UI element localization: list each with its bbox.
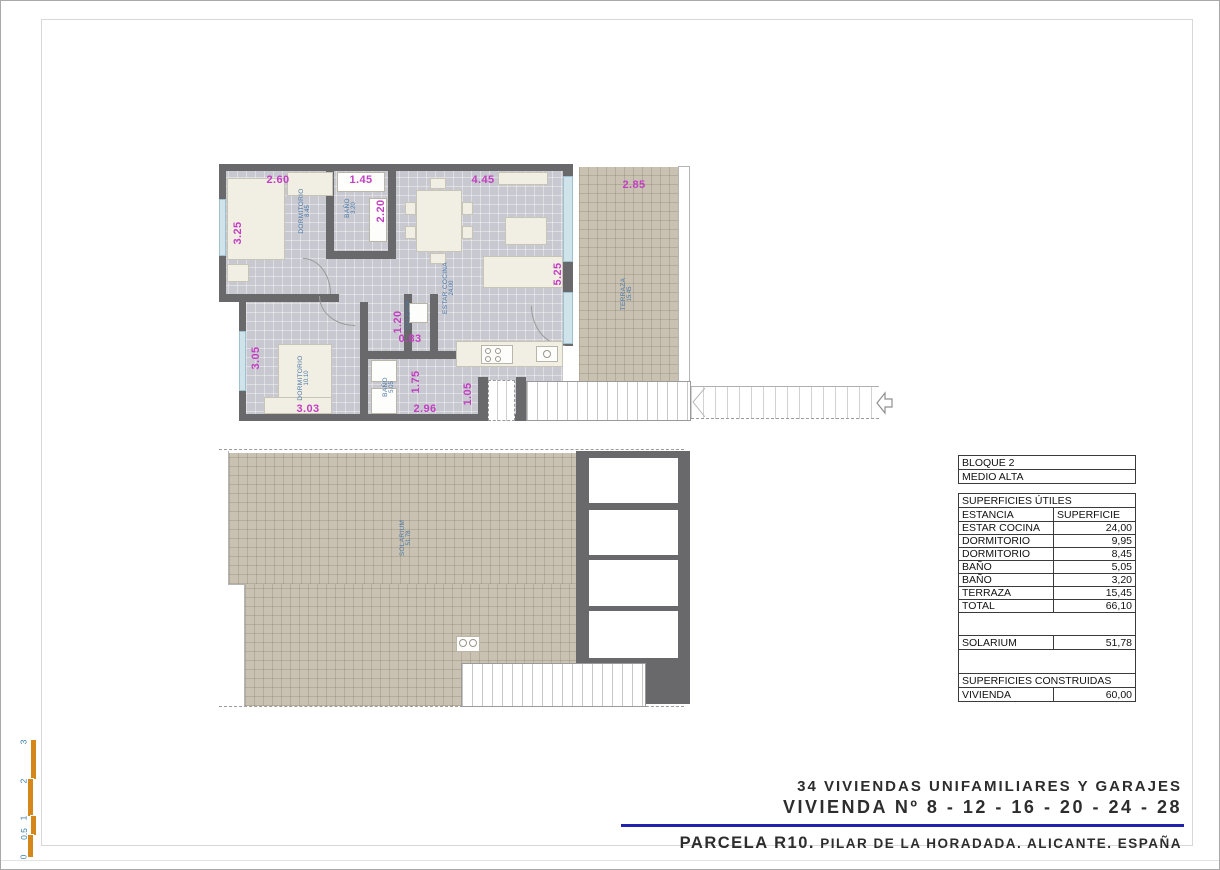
table-cell-area: 5,05	[1054, 561, 1135, 573]
sheet-frame	[41, 19, 1193, 846]
furniture-chair	[462, 226, 473, 239]
table-row-level: MEDIO ALTA	[958, 469, 1136, 484]
furniture-dining-table	[416, 190, 462, 252]
scale-label: 2	[18, 779, 28, 784]
band-void	[589, 458, 678, 503]
section-utiles-label: SUPERFICIES ÚTILES	[959, 495, 1075, 507]
sheet-bottom-line	[1, 860, 1220, 861]
location-title: PARCELA R10. PILAR DE LA HORADADA. ALICA…	[680, 834, 1182, 853]
location-label: PILAR DE LA HORADADA. ALICANTE. ESPAÑA	[815, 836, 1182, 851]
band-void	[589, 611, 678, 658]
bath-fixture	[371, 388, 397, 414]
wall	[219, 164, 573, 171]
table-cell-area: 9,95	[1054, 535, 1135, 547]
table-section-utiles: SUPERFICIES ÚTILES	[958, 493, 1136, 508]
furniture-chair	[430, 178, 446, 189]
furniture-wardrobe	[287, 172, 333, 196]
table-row-block: BLOQUE 2	[958, 455, 1136, 470]
table-cell-room: BAÑO	[959, 574, 1054, 586]
band-void	[589, 560, 678, 606]
stairs-upper-plan	[526, 381, 691, 421]
table-row: DORMITORIO9,95	[958, 534, 1136, 548]
table-header-row: ESTANCIA SUPERFICIE	[958, 507, 1136, 522]
upper-floor-plan	[219, 164, 691, 422]
window	[239, 331, 246, 391]
table-empty-row	[958, 649, 1136, 674]
wall	[364, 351, 459, 359]
table-section-construidas: SUPERFICIES CONSTRUIDAS	[958, 673, 1136, 688]
furniture-chair	[405, 202, 416, 215]
block-label: BLOQUE 2	[959, 457, 1018, 469]
stove-burner	[495, 348, 501, 354]
table-cell-area: 66,10	[1054, 600, 1135, 612]
table-cell-area: 15,45	[1054, 587, 1135, 599]
washer	[409, 303, 428, 323]
furniture-chair	[405, 226, 416, 239]
direction-arrow-icon	[876, 391, 894, 415]
table-row: TERRAZA15,45	[958, 586, 1136, 600]
band-void	[589, 510, 678, 555]
bath-vanity	[337, 172, 385, 192]
table-row-vivienda: VIVIENDA 60,00	[958, 687, 1136, 702]
vivienda-value: 60,00	[1054, 689, 1135, 701]
scale-label: 0.5	[19, 828, 29, 840]
table-empty-row	[958, 612, 1136, 636]
scale-segment	[30, 815, 37, 836]
room-labels-layer: DORMITORIO8.45BAÑO3.20ESTAR COCINA24.00T…	[1, 1, 1220, 870]
dashed-boundary	[219, 449, 684, 450]
areas-table: BLOQUE 2 MEDIO ALTA SUPERFICIES ÚTILES E…	[958, 456, 1136, 702]
walkway-chevron	[691, 387, 707, 418]
table-cell-area: 3,20	[1054, 574, 1135, 586]
shaft-hatch	[488, 380, 515, 421]
terrace-floor	[579, 167, 678, 383]
dwelling-numbers-title: VIVIENDA Nº 8 - 12 - 16 - 20 - 24 - 28	[783, 797, 1182, 818]
drawing-sheet: 2.601.454.452.853.252.205.251.200.833.05…	[0, 0, 1220, 870]
furniture-nightstand	[227, 264, 249, 282]
solarium-label: SOLARIUM	[959, 636, 1054, 649]
vivienda-label: VIVIENDA	[959, 688, 1054, 701]
stove-burner	[485, 348, 491, 354]
table-data-rows: ESTAR COCINA24,00DORMITORIO9,95DORMITORI…	[958, 521, 1136, 613]
scale-label: 1	[18, 816, 28, 821]
wall	[326, 251, 396, 259]
title-divider-line	[621, 824, 1184, 827]
table-row-solarium: SOLARIUM 51,78	[958, 635, 1136, 650]
scale-segment	[27, 778, 34, 817]
stove-burner	[495, 356, 501, 362]
window	[219, 199, 226, 256]
furniture-sofa	[483, 256, 563, 288]
table-cell-room: TOTAL	[959, 600, 1054, 612]
terrace-edge-strip	[678, 166, 690, 384]
table-row: TOTAL66,10	[958, 599, 1136, 613]
table-cell-room: DORMITORIO	[959, 548, 1054, 560]
wall	[388, 164, 396, 259]
scale-label: 0	[18, 855, 28, 860]
stove-burner	[485, 356, 491, 362]
furniture-coffee-table	[505, 217, 547, 245]
furniture-chair	[430, 253, 446, 264]
walkway-ramp	[691, 386, 879, 419]
stairs-solarium	[461, 663, 646, 707]
bath-shower	[369, 198, 387, 242]
scale-segment	[30, 739, 37, 780]
table-cell-room: BAÑO	[959, 561, 1054, 573]
level-label: MEDIO ALTA	[959, 471, 1026, 483]
table-cell-area: 8,45	[1054, 548, 1135, 560]
bath-fixture	[371, 360, 397, 382]
wall	[478, 377, 488, 421]
solarium-tiles	[229, 453, 576, 584]
parcel-label: PARCELA R10.	[680, 834, 815, 852]
furniture-dresser	[264, 397, 332, 414]
solarium-plan	[219, 449, 691, 711]
solarium-value: 51,78	[1054, 637, 1135, 649]
upper-plan-dimensions: 2.601.454.452.853.252.205.251.200.833.05…	[1, 1, 1220, 870]
wall	[360, 302, 368, 421]
table-row: BAÑO3,20	[958, 573, 1136, 587]
table-cell-room: DORMITORIO	[959, 535, 1054, 547]
column-header-room: ESTANCIA	[959, 508, 1054, 521]
project-title: 34 VIVIENDAS UNIFAMILIARES Y GARAJES	[797, 778, 1182, 795]
table-row: BAÑO5,05	[958, 560, 1136, 574]
furniture-tv-unit	[498, 172, 548, 185]
wall	[516, 377, 526, 421]
table-cell-room: TERRAZA	[959, 587, 1054, 599]
table-cell-area: 24,00	[1054, 522, 1135, 534]
vent-circle	[469, 639, 477, 647]
plan-outline	[228, 584, 245, 585]
furniture-bed	[227, 178, 285, 260]
vent-circle	[459, 639, 467, 647]
section-construidas-label: SUPERFICIES CONSTRUIDAS	[959, 675, 1114, 687]
table-row: ESTAR COCINA24,00	[958, 521, 1136, 535]
window	[563, 176, 573, 262]
sink-basin	[543, 350, 551, 358]
wall	[430, 294, 438, 356]
scale-label: 3	[18, 740, 28, 745]
table-row: DORMITORIO8,45	[958, 547, 1136, 561]
column-header-area: SUPERFICIE	[1054, 509, 1135, 521]
furniture-chair	[462, 202, 473, 215]
table-cell-room: ESTAR COCINA	[959, 522, 1054, 534]
plan-notch	[219, 302, 239, 421]
